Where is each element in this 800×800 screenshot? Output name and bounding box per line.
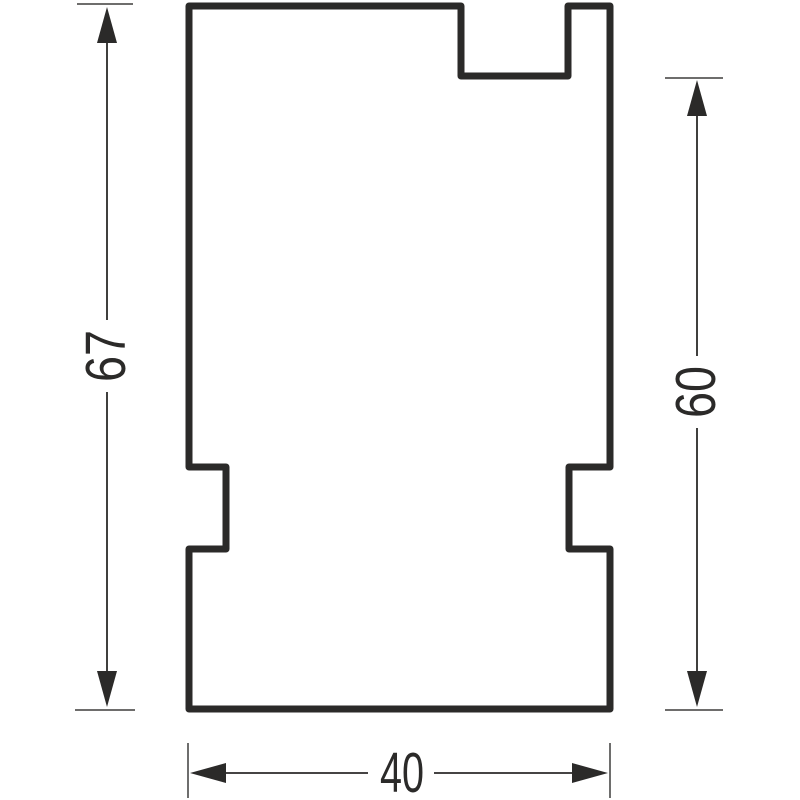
dim-tab-value: 60 [664,366,728,418]
technical-drawing: 67 60 40 [0,0,800,800]
drawing-canvas: 67 60 40 [0,0,800,800]
dim-tab-arrow-down-icon [687,671,707,707]
dim-tab-arrow-up-icon [687,80,707,116]
part-outline [189,6,610,709]
dim-width-arrow-left-icon [190,763,226,783]
dim-width-arrow-right-icon [572,763,608,783]
dim-height-arrow-down-icon [97,671,117,707]
dim-width-value: 40 [380,741,424,800]
dimension-overall-width: 40 [188,741,610,800]
dimension-tab-height: 60 [664,78,728,710]
dim-height-value: 67 [74,330,138,382]
dim-height-arrow-up-icon [97,7,117,43]
dimension-overall-height: 67 [74,4,138,710]
